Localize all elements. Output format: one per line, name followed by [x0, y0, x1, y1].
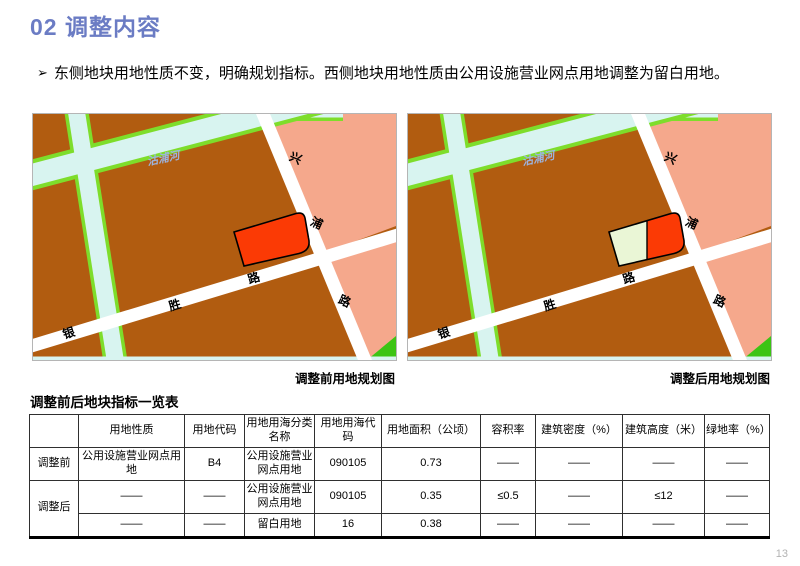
table-cell: 公用设施营业网点用地 [79, 447, 185, 480]
table-cell: —— [536, 480, 623, 513]
slide-page: 02 调整内容 ➢东侧地块用地性质不变，明确规划指标。西侧地块用地性质由公用设施… [0, 0, 800, 566]
table-cell: ≤12 [623, 480, 705, 513]
map-after-container: 沽浦河 兴 浦 路 银 胜 路 调整后用地规划图 [407, 113, 770, 387]
table-cell: —— [705, 513, 770, 537]
table-cell: —— [79, 480, 185, 513]
table-cell: —— [185, 480, 245, 513]
bottom-water-strip [408, 357, 771, 361]
table-header-cell: 用地性质 [79, 415, 185, 448]
table-cell: 0.38 [382, 513, 481, 537]
table-row-before: 调整前 公用设施营业网点用地 B4 公用设施营业网点用地 090105 0.73… [30, 447, 770, 480]
table-header-cell: 容积率 [481, 415, 536, 448]
table-cell: —— [705, 480, 770, 513]
table-cell: 0.73 [382, 447, 481, 480]
bullet-arrow-icon: ➢ [37, 65, 48, 80]
table-cell: —— [536, 447, 623, 480]
table-row-after-2: —— —— 留白用地 16 0.38 —— —— —— —— [30, 513, 770, 537]
table-cell: —— [481, 447, 536, 480]
map-before-caption: 调整前用地规划图 [32, 368, 395, 387]
table-header-cell: 用地用海分类名称 [245, 415, 315, 448]
table-header-cell: 建筑密度（%） [536, 415, 623, 448]
table-header-row: 用地性质 用地代码 用地用海分类名称 用地用海代码 用地面积（公顷） 容积率 建… [30, 415, 770, 448]
table-cell: 090105 [315, 447, 382, 480]
page-title: 02 调整内容 [30, 8, 161, 42]
table-cell: —— [481, 513, 536, 537]
table-cell: B4 [185, 447, 245, 480]
page-number: 13 [776, 548, 788, 560]
map-before-container: 沽浦河 兴 浦 路 银 胜 路 调整前用地规划图 [32, 113, 395, 387]
table-cell: —— [705, 447, 770, 480]
table-cell: 留白用地 [245, 513, 315, 537]
bullet-text: 东侧地块用地性质不变，明确规划指标。西侧地块用地性质由公用设施营业网点用地调整为… [54, 65, 729, 82]
table-cell: —— [623, 447, 705, 480]
map-before: 沽浦河 兴 浦 路 银 胜 路 [32, 113, 397, 361]
table-cell: ≤0.5 [481, 480, 536, 513]
table-cell: —— [623, 513, 705, 537]
table-header-cell: 建筑高度（米） [623, 415, 705, 448]
table-cell: 公用设施营业网点用地 [245, 447, 315, 480]
table-row-after-1: 调整后 —— —— 公用设施营业网点用地 090105 0.35 ≤0.5 ——… [30, 480, 770, 513]
table-header-cell: 用地用海代码 [315, 415, 382, 448]
table-cell: 0.35 [382, 480, 481, 513]
table-cell: 公用设施营业网点用地 [245, 480, 315, 513]
table-header-cell: 绿地率（%） [705, 415, 770, 448]
map-after-caption: 调整后用地规划图 [407, 368, 770, 387]
bullet-line: ➢东侧地块用地性质不变，明确规划指标。西侧地块用地性质由公用设施营业网点用地调整… [37, 62, 782, 83]
table-header-cell: 用地代码 [185, 415, 245, 448]
map-after: 沽浦河 兴 浦 路 银 胜 路 [407, 113, 772, 361]
row-label: 调整后 [30, 480, 79, 537]
table-cell: 090105 [315, 480, 382, 513]
table-cell: —— [536, 513, 623, 537]
bottom-water-strip [33, 357, 396, 361]
table-cell: —— [79, 513, 185, 537]
table-cell: 16 [315, 513, 382, 537]
table-header-cell: 用地面积（公顷） [382, 415, 481, 448]
table-header-cell [30, 415, 79, 448]
row-label: 调整前 [30, 447, 79, 480]
table-cell: —— [185, 513, 245, 537]
indicator-table: 用地性质 用地代码 用地用海分类名称 用地用海代码 用地面积（公顷） 容积率 建… [29, 414, 770, 539]
table-title: 调整前后地块指标一览表 [30, 391, 179, 411]
